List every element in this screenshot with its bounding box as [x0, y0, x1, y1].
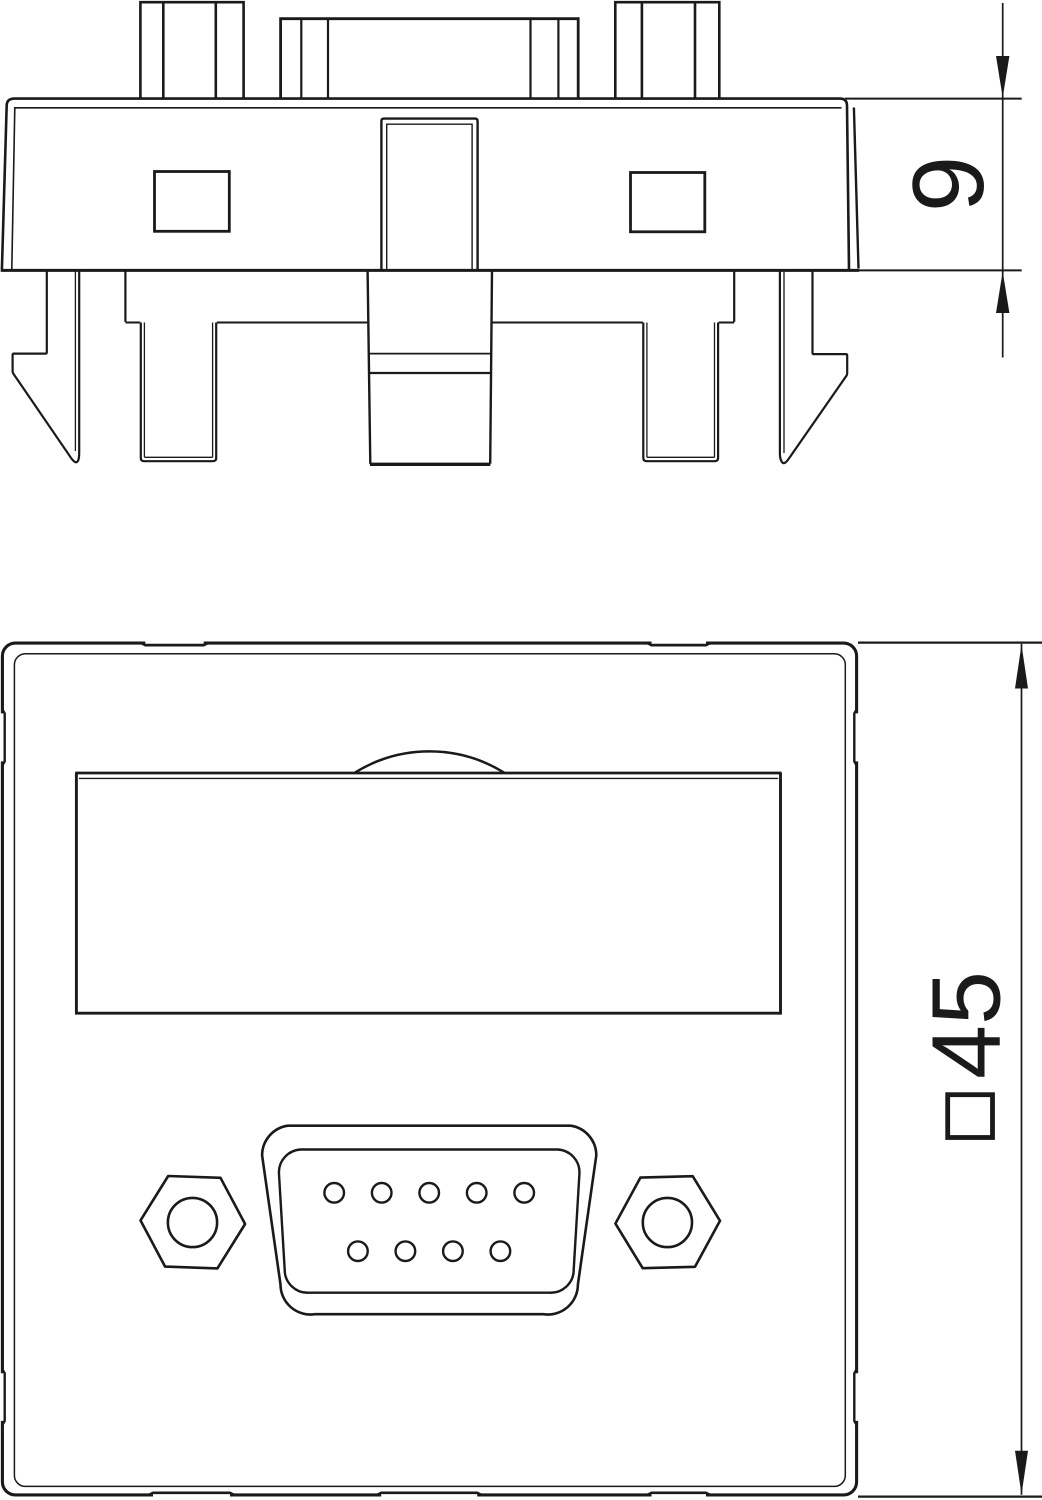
- svg-text:9: 9: [891, 156, 1005, 212]
- svg-text:45: 45: [912, 971, 1021, 1079]
